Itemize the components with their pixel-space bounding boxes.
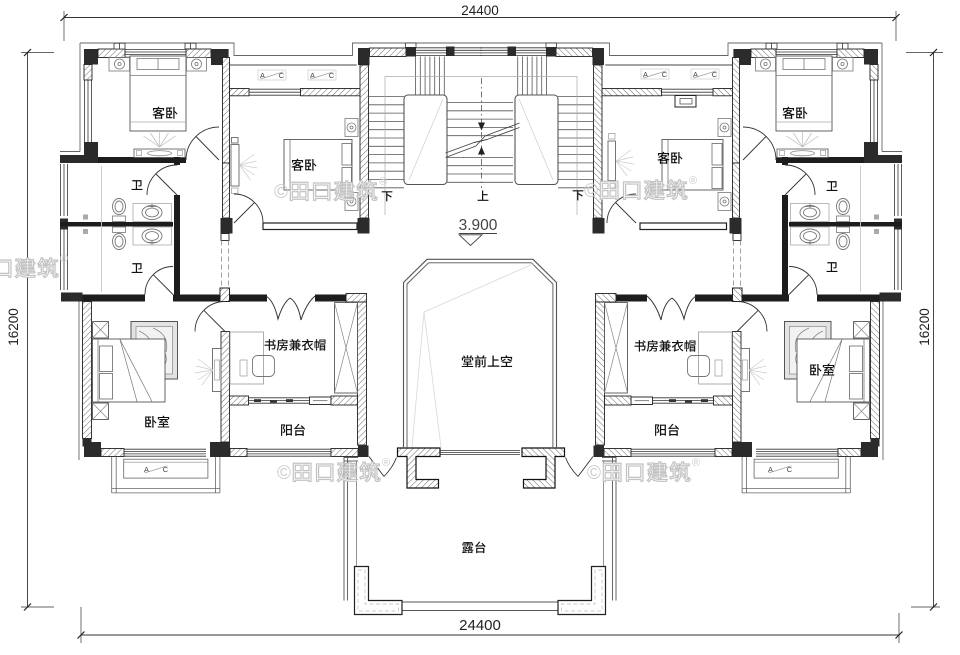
svg-text:®: ® [382, 457, 390, 469]
svg-text:16200: 16200 [917, 308, 932, 346]
svg-text:®: ® [379, 176, 387, 188]
svg-text:©: © [584, 181, 598, 202]
svg-text:24400: 24400 [461, 3, 499, 18]
svg-text:®: ® [60, 253, 68, 265]
svg-text:©: © [587, 463, 601, 484]
svg-text:24400: 24400 [459, 617, 501, 634]
svg-text:®: ® [692, 457, 700, 469]
svg-text:®: ® [689, 175, 697, 187]
svg-text:3.900: 3.900 [459, 217, 498, 234]
svg-text:©: © [277, 463, 291, 484]
svg-text:©: © [274, 182, 288, 203]
svg-text:16200: 16200 [6, 308, 21, 346]
